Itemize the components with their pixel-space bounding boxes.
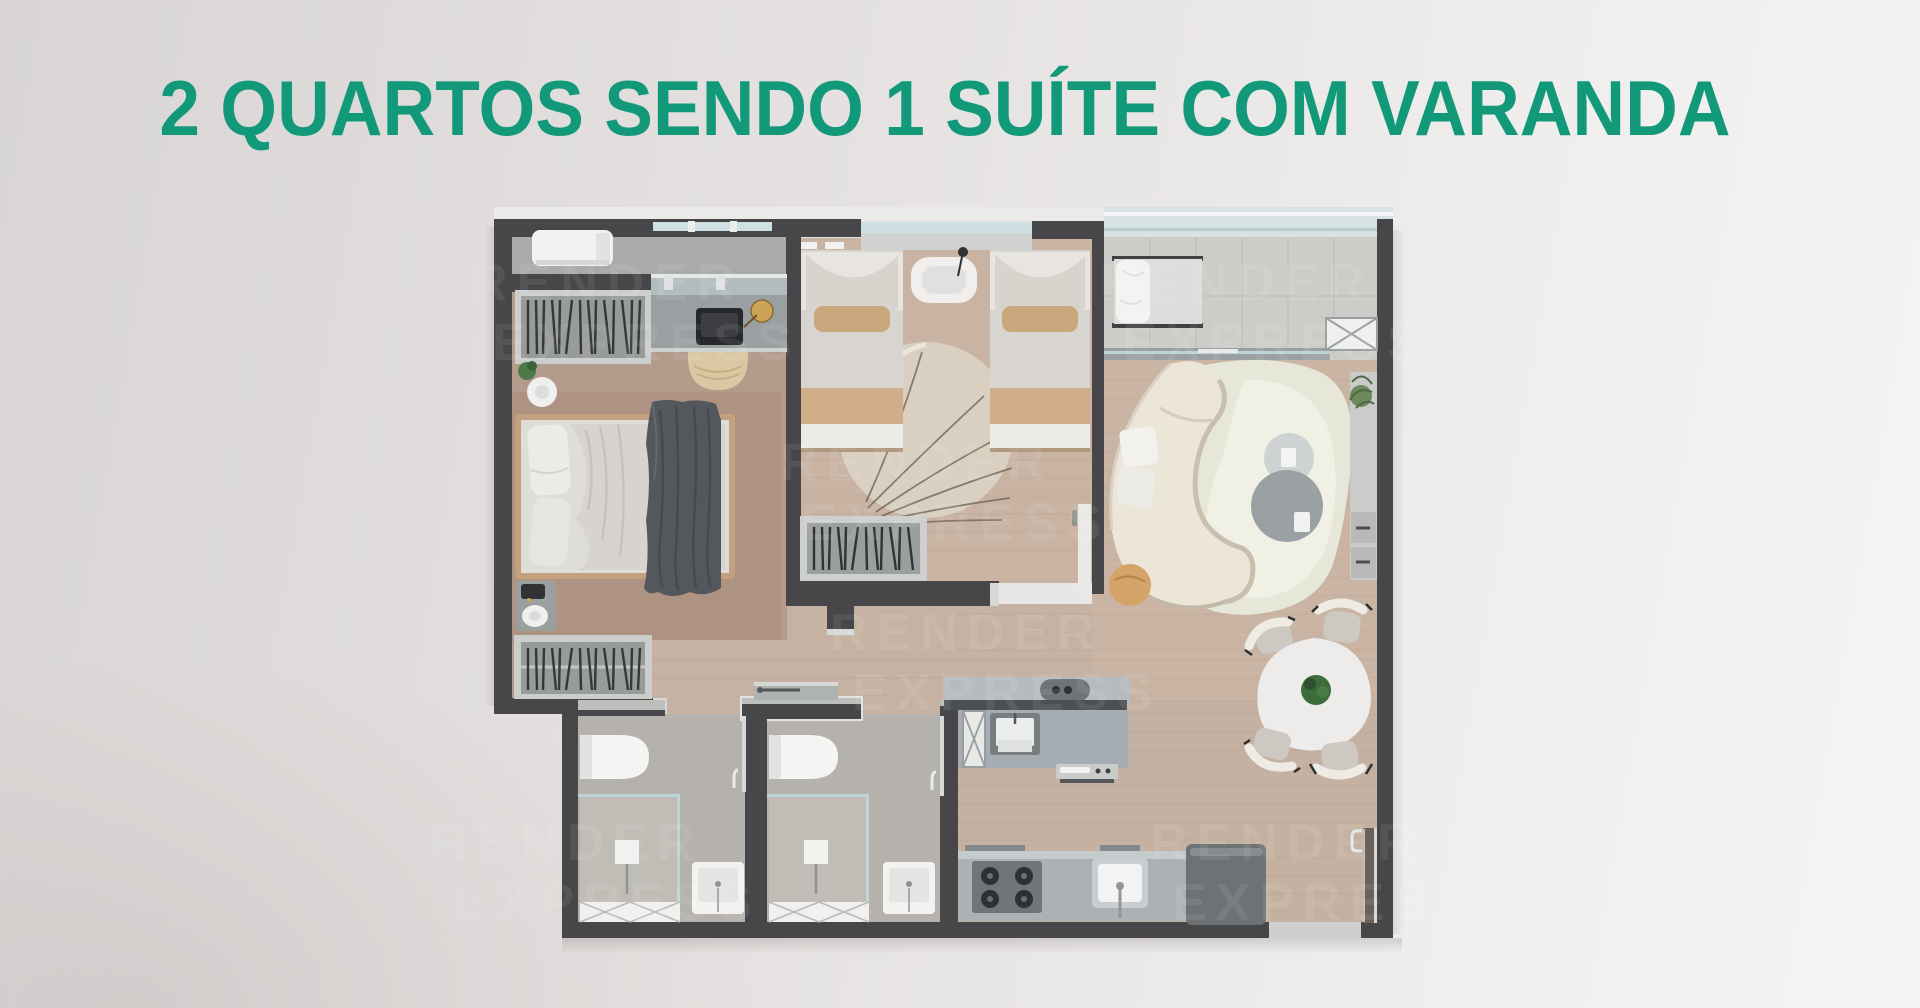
- svg-text:EXPRESS: EXPRESS: [1172, 874, 1481, 932]
- svg-text:RENDER: RENDER: [780, 434, 1054, 492]
- svg-text:RENDER: RENDER: [830, 604, 1104, 662]
- svg-text:RENDER: RENDER: [1100, 254, 1374, 312]
- svg-text:EXPRESS: EXPRESS: [802, 494, 1111, 552]
- svg-text:EXPRESS: EXPRESS: [452, 874, 761, 932]
- svg-text:EXPRESS: EXPRESS: [1122, 314, 1431, 372]
- svg-text:EXPRESS: EXPRESS: [492, 314, 801, 372]
- svg-text:EXPRESS: EXPRESS: [852, 664, 1161, 722]
- svg-text:RENDER: RENDER: [1150, 814, 1424, 872]
- svg-text:RENDER: RENDER: [470, 254, 744, 312]
- svg-text:RENDER: RENDER: [430, 814, 704, 872]
